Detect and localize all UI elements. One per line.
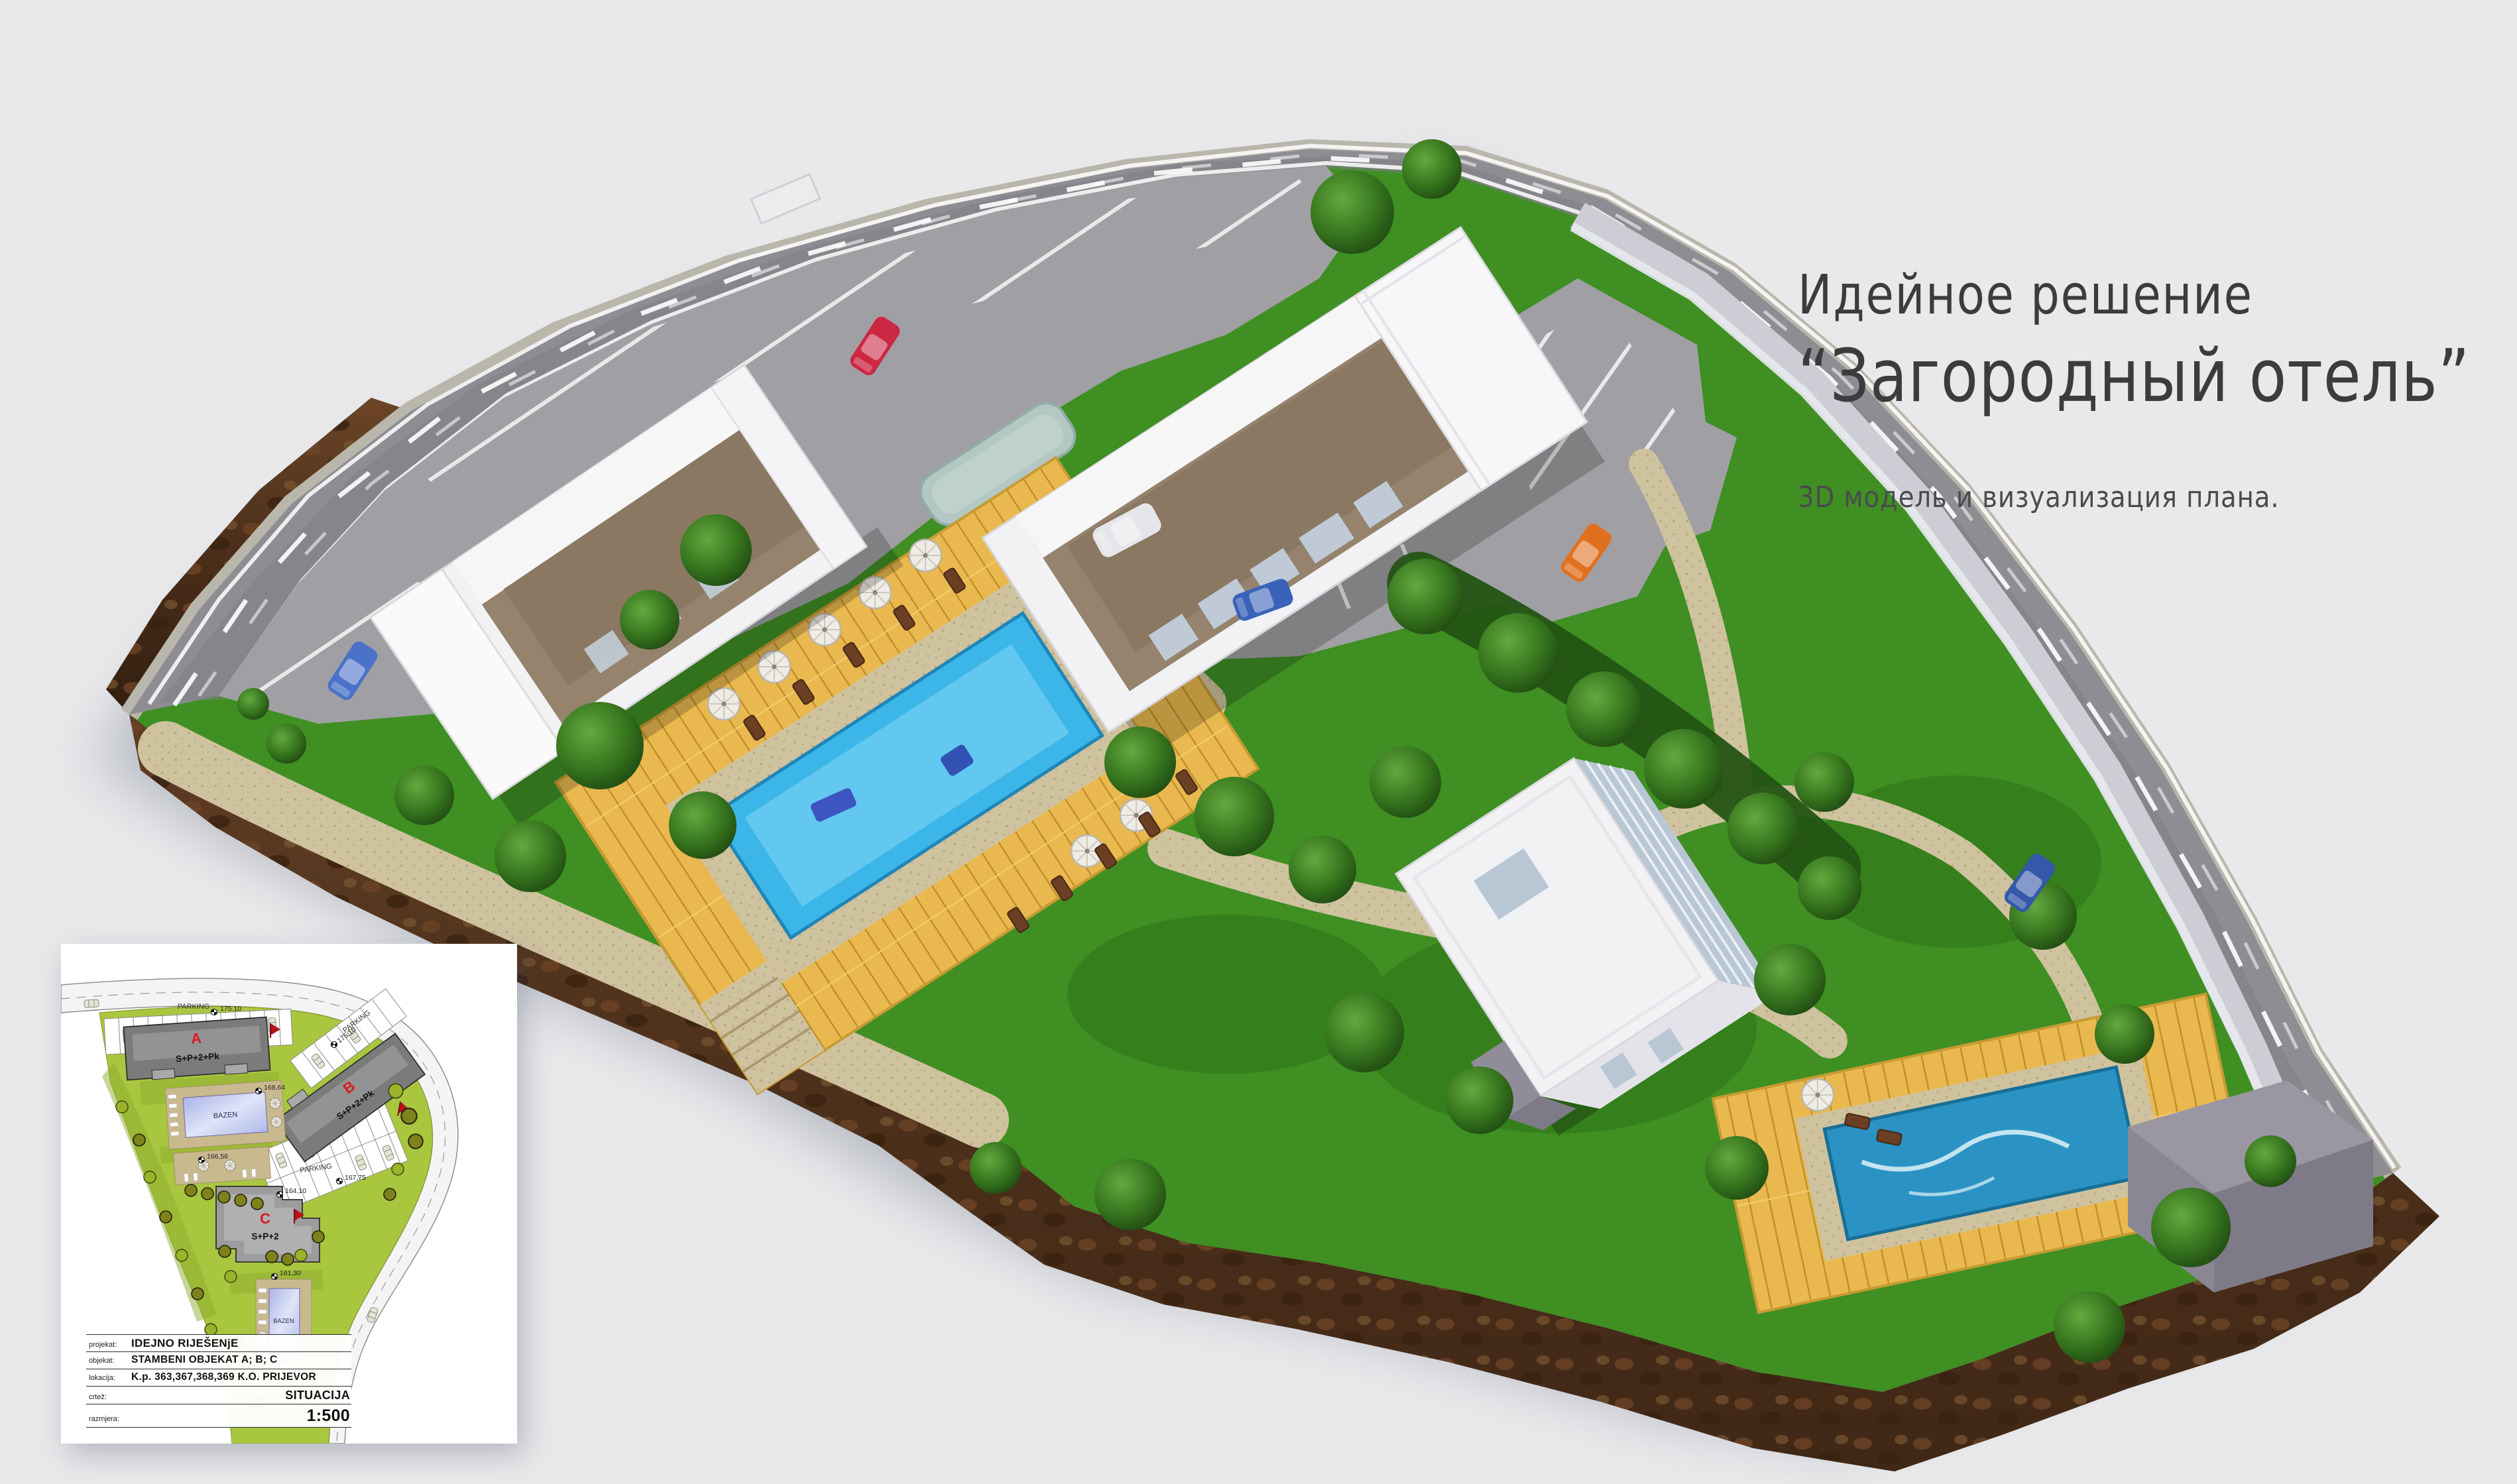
page-title-line2: “Загородный отель” [1798, 333, 2388, 418]
plan-elev-parking-mid: 167,75 [345, 1174, 366, 1182]
plan-building-a: A S+P+2+Pk [123, 1017, 270, 1082]
page-subtitle: 3D модель и визуализация плана. [1798, 481, 2416, 514]
plan-elev-terrace: 166,56 [207, 1153, 228, 1161]
title-block-value: IDEJNO RIJEŠENjE [131, 1337, 239, 1350]
title-block-row: objekat: STAMBENI OBJEKAT A; B; C [86, 1351, 351, 1369]
title-block-row: razmjera: 1:500 [86, 1404, 351, 1428]
title-block-label: objekat: [89, 1357, 131, 1365]
title-block-row: projekat: IDEJNO RIJEŠENjE [86, 1334, 351, 1351]
plan-elev-a: 175.10 [220, 1005, 241, 1013]
plan-parking-label-top: PARKING [178, 1003, 210, 1011]
plan-label-a: A [190, 1030, 202, 1047]
title-block-row: crtež: SITUACIJA [86, 1386, 351, 1404]
plan-elev-pool-upper: 168,64 [264, 1084, 285, 1092]
plan-pool-upper-label: BAZEN [213, 1111, 237, 1121]
page-title-line1: Идейное решение [1798, 264, 2388, 327]
title-block-label: crtež: [89, 1393, 131, 1401]
title-block-label: razmjera: [89, 1415, 131, 1423]
title-block-label: projekat: [89, 1341, 131, 1349]
inset-site-plan: PARKING PARKING [61, 944, 517, 1444]
plan-title-block: projekat: IDEJNO RIJEŠENjE objekat: STAM… [86, 1334, 351, 1428]
plan-road-car-1 [84, 999, 99, 1007]
title-block-value: SITUACIJA [131, 1389, 350, 1402]
plan-pool-lower-label: BAZEN [273, 1318, 294, 1325]
title-block-row: lokacija: K.p. 363,367,368,369 K.O. PRIJ… [86, 1369, 351, 1386]
second-deck-umbrella [1802, 1079, 1834, 1111]
plan-elev-c: 164,10 [285, 1187, 306, 1195]
title-block-label: lokacija: [89, 1374, 131, 1382]
plan-label-c: C [260, 1210, 270, 1227]
title-block-value: K.p. 363,367,368,369 K.O. PRIJEVOR [131, 1371, 316, 1383]
title-area: Идейное решение “Загородный отель” 3D мо… [1798, 264, 2500, 514]
title-block-value: 1:500 [131, 1406, 350, 1426]
presentation-board: Идейное решение “Загородный отель” 3D мо… [0, 0, 2517, 1484]
plan-floors-c: S+P+2 [251, 1231, 278, 1241]
title-block-value: STAMBENI OBJEKAT A; B; C [131, 1354, 277, 1366]
plan-elev-pool-lower: 161,30 [280, 1269, 301, 1277]
